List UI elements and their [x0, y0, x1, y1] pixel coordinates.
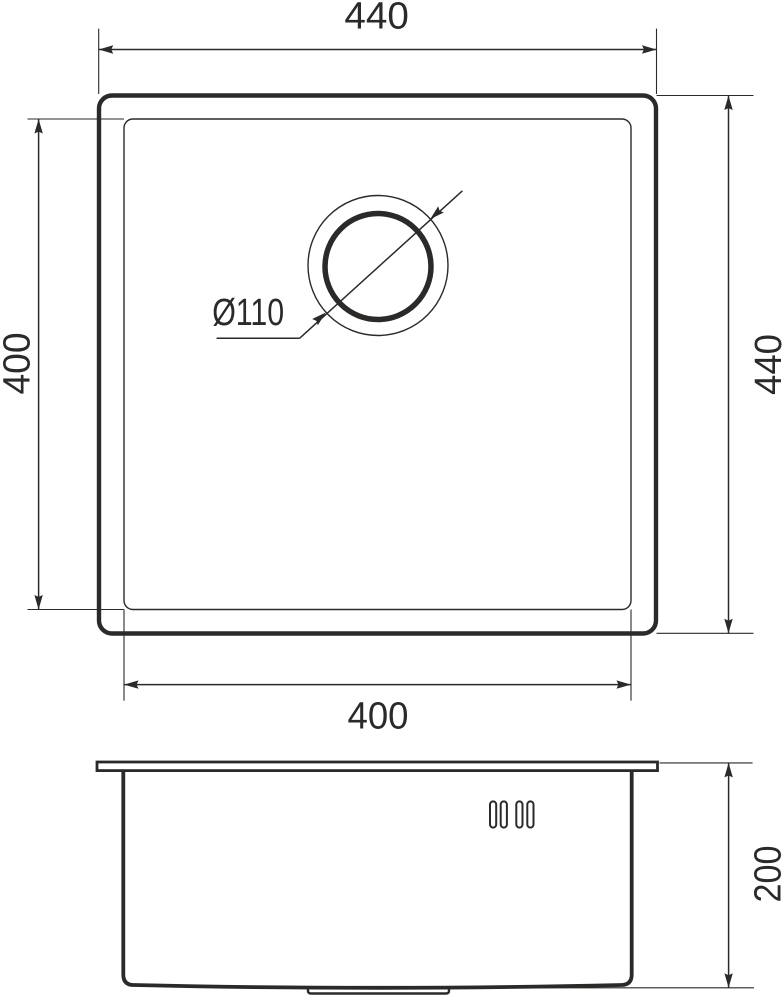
svg-text:400: 400 [0, 333, 39, 395]
svg-text:200: 200 [748, 846, 782, 903]
svg-text:400: 400 [348, 695, 409, 737]
svg-text:Ø110: Ø110 [212, 292, 284, 334]
svg-text:440: 440 [344, 0, 409, 38]
svg-text:440: 440 [748, 334, 782, 395]
